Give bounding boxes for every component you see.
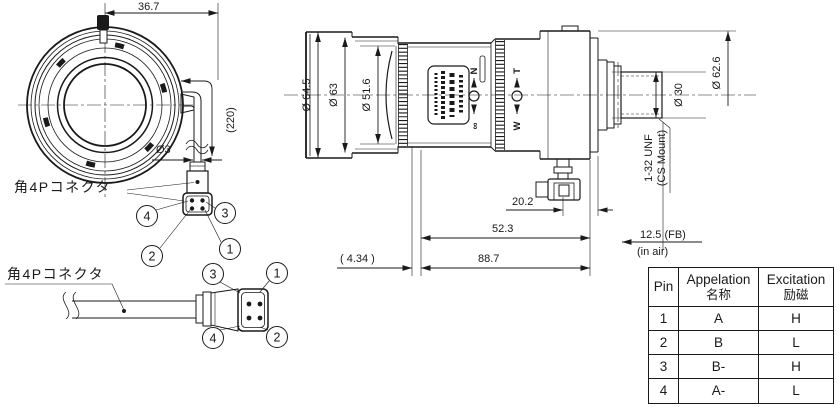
dim-flange-back: 12.5 (FB): [640, 229, 686, 241]
dim-88-7: 88.7: [478, 253, 499, 265]
table-cell-appelation-2: B: [679, 331, 759, 355]
pin-table: Pin Appelation 名称 Excitation 励磁 1 A H 2 …: [648, 267, 834, 404]
callout-pin3: 3: [222, 207, 229, 221]
table-cell-pin-1: 1: [649, 307, 679, 331]
dim-cable-dia: Ø3: [156, 144, 171, 156]
mount-thread-label: 1-32 UNF: [643, 134, 655, 182]
cable-assembly-view: 角4Pコネクタ: [5, 266, 268, 331]
dim-dia-62-6: Ø 62.6: [711, 56, 723, 89]
pin-table-header-pin: Pin: [649, 268, 679, 307]
dim-52-3: 52.3: [492, 223, 513, 235]
callout-pin4: 4: [144, 210, 151, 224]
dim-36-7: 36.7: [138, 1, 159, 13]
dim-20-2: 20.2: [512, 196, 533, 208]
focus-near-label: N: [469, 67, 480, 74]
table-cell-pin-2: 2: [649, 331, 679, 355]
connector1-callouts: 4 3 2 1: [137, 201, 241, 267]
table-cell-appelation-3: B-: [679, 355, 759, 379]
lens-technical-drawing: 36.7 (220) Ø3 角4Pコネクタ 4 3 2 1 角4Pコネクタ: [0, 0, 840, 409]
header-pin-label: Pin: [654, 279, 674, 295]
lens-connector-socket: [536, 159, 580, 200]
pin-table-header-appelation: Appelation 名称: [679, 268, 759, 307]
mount-type-label: (CS Mount): [656, 130, 668, 186]
dim-4-34: ( 4.34 ): [340, 253, 375, 265]
focus-infinity-label: ∞: [470, 122, 481, 129]
top-knob-icon: [97, 15, 109, 43]
zoom-adjust-screw: T W: [512, 68, 523, 131]
table-cell-excitation-4: L: [759, 379, 833, 403]
connector-label-2: 角4Pコネクタ: [7, 266, 104, 282]
table-cell-excitation-2: L: [759, 331, 833, 355]
header-excitation-en: Excitation: [767, 272, 826, 288]
header-excitation-jp: 励磁: [783, 288, 808, 302]
callout2-pin4: 4: [210, 332, 217, 346]
dim-dia-51-6: Ø 51.6: [361, 78, 373, 111]
dim-dia-30: Ø 30: [673, 83, 685, 107]
callout2-pin3: 3: [210, 268, 217, 282]
side-view: N ∞ T W: [284, 26, 756, 200]
table-cell-appelation-4: A-: [679, 379, 759, 403]
table-cell-excitation-3: H: [759, 355, 833, 379]
callout-pin1: 1: [227, 243, 234, 257]
focus-adjust-screw: N ∞: [469, 56, 485, 129]
zoom-tele-label: T: [512, 68, 523, 74]
dim-flange-back-note: (in air): [637, 246, 668, 258]
header-appelation-en: Appelation: [687, 272, 751, 288]
front-view: [18, 15, 196, 197]
callout-pin2: 2: [149, 250, 156, 264]
table-cell-appelation-1: A: [679, 307, 759, 331]
zoom-wide-label: W: [512, 121, 523, 130]
table-cell-pin-3: 3: [649, 355, 679, 379]
callout2-pin2: 2: [274, 331, 281, 345]
pin-table-header-excitation: Excitation 励磁: [759, 268, 833, 307]
header-appelation-jp: 名称: [706, 288, 731, 302]
dim-cable-length: (220): [225, 107, 237, 133]
table-cell-excitation-1: H: [759, 307, 833, 331]
table-cell-pin-4: 4: [649, 379, 679, 403]
dim-dia-63: Ø 63: [328, 83, 340, 107]
dim-dia-64-5: Ø 64.5: [301, 78, 313, 111]
connector-label-1: 角4Pコネクタ: [14, 179, 111, 195]
callout2-pin1: 1: [274, 267, 281, 281]
